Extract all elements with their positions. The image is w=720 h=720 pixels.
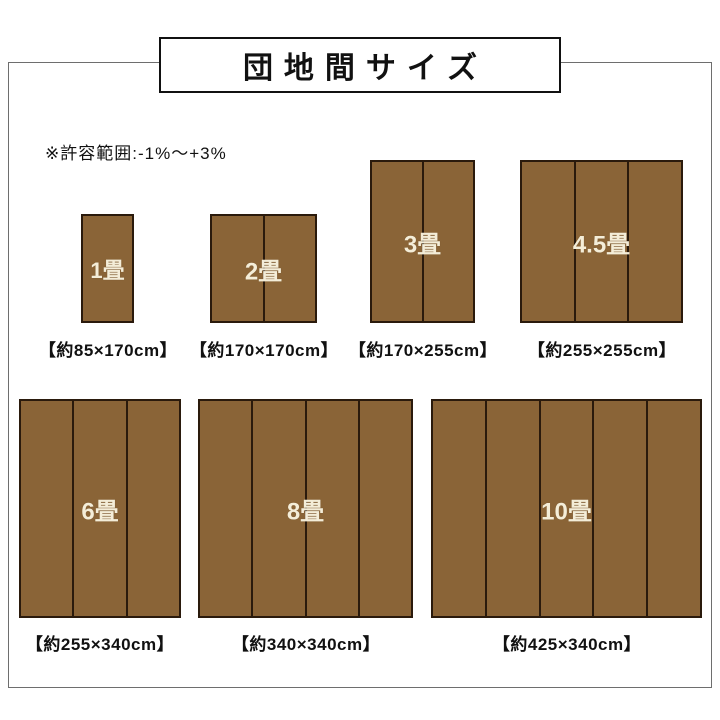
tatami-panel bbox=[200, 401, 251, 616]
mat-dimensions-1jo: 【約85×170cm】 bbox=[23, 336, 193, 361]
mat-dimensions-2jo: 【約170×170cm】 bbox=[179, 336, 349, 361]
mat-size-label: 4.5畳 bbox=[573, 224, 630, 259]
tatami-panel bbox=[126, 401, 179, 616]
mat-size-label: 2畳 bbox=[245, 251, 282, 286]
page-title: 団地間サイズ bbox=[232, 43, 488, 87]
tatami-panel bbox=[627, 162, 681, 321]
mat-size-label: 10畳 bbox=[541, 491, 592, 526]
mat-dimensions-45jo: 【約255×255cm】 bbox=[517, 336, 687, 361]
tatami-panel bbox=[485, 401, 539, 616]
mat-size-label: 1畳 bbox=[90, 253, 124, 285]
tatami-panel bbox=[522, 162, 574, 321]
mat-8jo: 8畳 bbox=[198, 399, 413, 618]
mat-dimensions-8jo: 【約340×340cm】 bbox=[221, 630, 391, 655]
mat-size-label: 8畳 bbox=[287, 491, 324, 526]
mat-size-label: 6畳 bbox=[81, 491, 118, 526]
tatami-panel bbox=[592, 401, 646, 616]
mat-10jo: 10畳 bbox=[431, 399, 702, 618]
title-banner: 団地間サイズ bbox=[159, 37, 561, 93]
tatami-panel bbox=[433, 401, 485, 616]
mat-dimensions-3jo: 【約170×255cm】 bbox=[338, 336, 508, 361]
mat-2jo: 2畳 bbox=[210, 214, 317, 323]
mat-dimensions-10jo: 【約425×340cm】 bbox=[482, 630, 652, 655]
mat-3jo: 3畳 bbox=[370, 160, 475, 323]
mat-dimensions-6jo: 【約255×340cm】 bbox=[15, 630, 185, 655]
tatami-panel bbox=[358, 401, 411, 616]
mat-6jo: 6畳 bbox=[19, 399, 181, 618]
tatami-panel bbox=[21, 401, 72, 616]
mat-45jo: 4.5畳 bbox=[520, 160, 683, 323]
tatami-panel bbox=[646, 401, 700, 616]
mat-size-label: 3畳 bbox=[404, 224, 441, 259]
tolerance-note: ※許容範囲:-1%〜+3% bbox=[45, 139, 227, 164]
mat-1jo: 1畳 bbox=[81, 214, 134, 323]
